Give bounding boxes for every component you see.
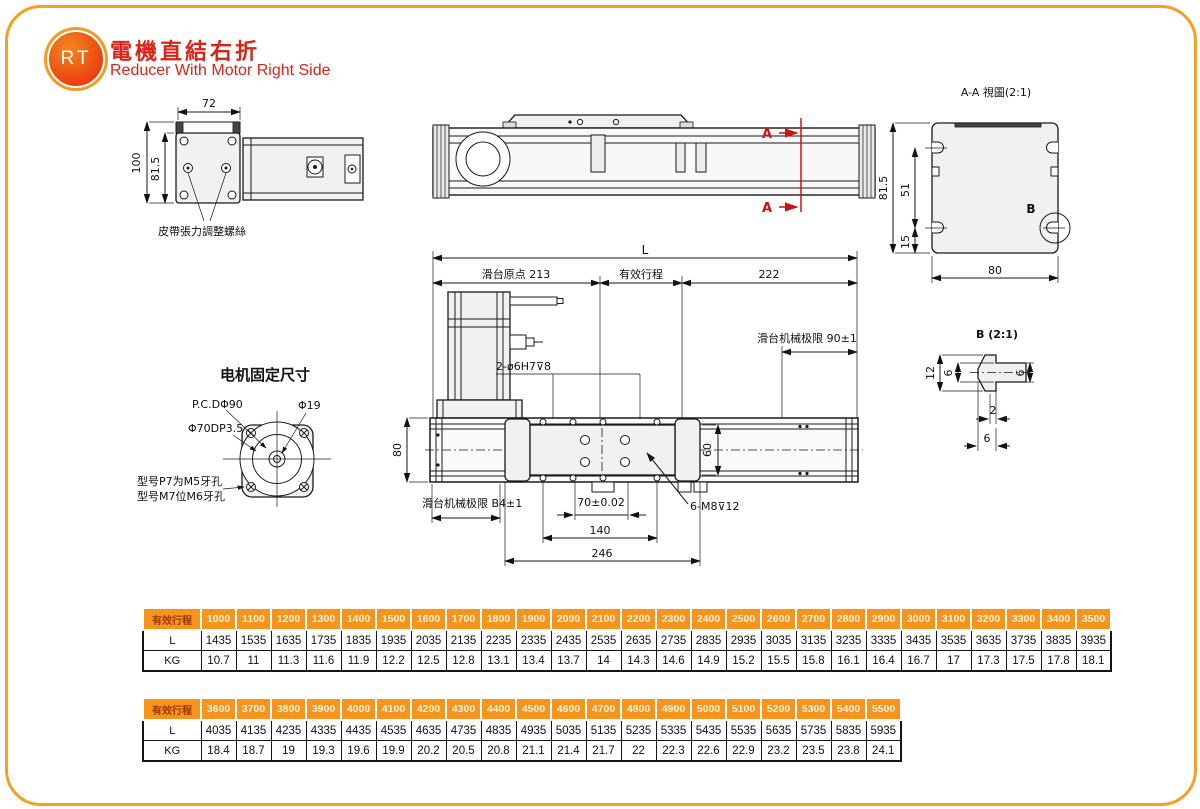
value-cell: 18.4 [201,741,236,762]
plan-dim-origin: 滑台原点 213 [482,267,551,281]
stroke-spec-table: 有效行程360037003800390040004100420043004400… [142,697,902,762]
value-cell: 13.1 [481,651,516,672]
value-cell: 2935 [726,630,761,651]
value-cell: 1535 [236,630,271,651]
stroke-header-cell: 1800 [481,608,516,630]
value-cell: 13.7 [551,651,586,672]
value-cell: 14.3 [621,651,656,672]
value-cell: 1735 [306,630,341,651]
stroke-header-cell: 2700 [796,608,831,630]
stroke-header-cell: 3400 [1041,608,1076,630]
value-cell: 15.2 [726,651,761,672]
value-cell: 12.8 [446,651,481,672]
value-cell: 5735 [796,720,831,741]
stroke-header-cell: 1700 [446,608,481,630]
table-row: KG10.71111.311.611.912.212.512.813.113.4… [143,651,1111,672]
plan-view-drawing: L 滑台原点 213 有效行程 222 [395,243,875,573]
plan-pin-holes: 2-ø6H7⊽8 [496,360,551,373]
plan-limit-right: 滑台机械极限 90±1 [757,331,857,345]
b-dim-12: 12 [924,366,937,380]
value-cell: 5435 [691,720,726,741]
value-cell: 1435 [201,630,236,651]
aa-dim-15: 15 [899,235,912,249]
value-cell: 22.9 [726,741,761,762]
value-cell: 21.4 [551,741,586,762]
value-cell: 13.4 [516,651,551,672]
value-cell: 14.9 [691,651,726,672]
value-cell: 4135 [236,720,271,741]
value-cell: 4235 [271,720,306,741]
value-cell: 19 [271,741,306,762]
stroke-header-cell: 3100 [936,608,971,630]
stroke-header-cell: 5000 [691,698,726,720]
stroke-header-cell: 1400 [341,608,376,630]
motor-note-2: 型号M7位M6牙孔 [137,489,225,503]
stroke-header-cell: 5400 [831,698,866,720]
value-cell: 19.6 [341,741,376,762]
value-cell: 23.8 [831,741,866,762]
value-cell: 16.4 [866,651,901,672]
stroke-header-cell: 4500 [516,698,551,720]
value-cell: 10.7 [201,651,236,672]
stroke-header-cell: 2600 [761,608,796,630]
value-cell: 20.8 [481,741,516,762]
value-cell: 5035 [551,720,586,741]
front-dim-height2: 81.5 [149,157,162,182]
stroke-header-cell: 1100 [236,608,271,630]
value-cell: 2635 [621,630,656,651]
value-cell: 18.7 [236,741,271,762]
value-cell: 22 [621,741,656,762]
row-label-cell: KG [143,741,201,762]
stroke-header-cell: 1900 [516,608,551,630]
stroke-header-cell: 3900 [306,698,341,720]
stroke-header-cell: 2100 [586,608,621,630]
value-cell: 3835 [1041,630,1076,651]
row-label-cell: KG [143,651,201,672]
value-cell: 15.5 [761,651,796,672]
value-cell: 2135 [446,630,481,651]
logo-text: RT [61,48,92,70]
value-cell: 4335 [306,720,341,741]
spec-table-1: 有效行程100011001200130014001500160017001800… [142,607,1112,672]
value-cell: 18.1 [1076,651,1111,672]
value-cell: 4735 [446,720,481,741]
value-cell: 2435 [551,630,586,651]
value-cell: 4935 [516,720,551,741]
section-aa-drawing: A-A 視圖(2:1) 81.5 51 15 8 [885,78,1197,293]
value-cell: 12.5 [411,651,446,672]
detail-b-drawing: B (2:1) 12 6 6 2 6 [928,316,1068,466]
stroke-header-cell: 4000 [341,698,376,720]
stroke-header-cell: 1500 [376,608,411,630]
value-cell: 3535 [936,630,971,651]
plan-dim-246: 246 [592,547,613,560]
value-cell: 19.3 [306,741,341,762]
stroke-header-cell: 3300 [1006,608,1041,630]
rt-logo: RT [44,27,108,91]
detail-b-title: B (2:1) [976,328,1018,341]
value-cell: 17.3 [971,651,1006,672]
table-row: L403541354235433544354535463547354835493… [143,720,901,741]
catalog-sheet: RT 電機直結右折 Reducer With Motor Right Side [0,0,1200,809]
aa-detail-b-label: B [1026,202,1035,216]
b-dim-6-bottom: 6 [984,432,991,445]
value-cell: 3435 [901,630,936,651]
motor-mount-drawing: 电机固定尺寸 P.C.DΦ90 Φ19 [130,358,400,518]
stroke-header-cell: 4900 [656,698,691,720]
stroke-header-cell: 4200 [411,698,446,720]
stroke-header-cell: 3800 [271,698,306,720]
value-cell: 3735 [1006,630,1041,651]
value-cell: 11.6 [306,651,341,672]
stroke-header-cell: 4300 [446,698,481,720]
stroke-header-cell: 4600 [551,698,586,720]
stroke-header-cell: 4100 [376,698,411,720]
stroke-header-cell: 3000 [901,608,936,630]
value-cell: 1935 [376,630,411,651]
section-label-a-top: A [762,127,772,142]
plan-dim-60: 60 [701,443,714,457]
aa-dim-height: 81.5 [877,176,890,201]
value-cell: 16.1 [831,651,866,672]
value-cell: 4435 [341,720,376,741]
spec-table-2: 有效行程360037003800390040004100420043004400… [142,697,902,762]
value-cell: 23.5 [796,741,831,762]
value-cell: 4635 [411,720,446,741]
b-dim-6-right: 6 [1014,370,1027,377]
stroke-header-cell: 2400 [691,608,726,630]
plan-motor [437,292,563,418]
value-cell: 5235 [621,720,656,741]
plan-screw-holes: 6-M8⊽12 [690,500,740,513]
value-cell: 15.8 [796,651,831,672]
motor-d70-label: Φ70DP3.5 [188,422,243,435]
value-cell: 24.1 [866,741,901,762]
value-cell: 20.5 [446,741,481,762]
stroke-spec-table: 有效行程100011001200130014001500160017001800… [142,607,1112,672]
value-cell: 11.3 [271,651,306,672]
stroke-header-cell: 3600 [201,698,236,720]
front-dim-width: 72 [202,97,216,110]
table-header-row: 有效行程100011001200130014001500160017001800… [143,608,1111,630]
value-cell: 21.7 [586,741,621,762]
b-dim-6-left: 6 [942,370,955,377]
value-cell: 4535 [376,720,411,741]
stroke-header-cell: 1000 [201,608,236,630]
stroke-header-cell: 3200 [971,608,1006,630]
stroke-header-cell: 2500 [726,608,761,630]
stroke-header-cell: 4400 [481,698,516,720]
value-cell: 22.3 [656,741,691,762]
value-cell: 11 [236,651,271,672]
stroke-header-cell: 3500 [1076,608,1111,630]
value-cell: 2035 [411,630,446,651]
value-cell: 17.5 [1006,651,1041,672]
side-view-drawing: A A [423,95,890,225]
stroke-header-cell: 1300 [306,608,341,630]
stroke-header-cell: 2900 [866,608,901,630]
value-cell: 2735 [656,630,691,651]
value-cell: 16.7 [901,651,936,672]
b-dim-2: 2 [990,404,997,417]
plan-dim-70: 70±0.02 [577,496,625,509]
value-cell: 4035 [201,720,236,741]
row-label-cell: L [143,630,201,651]
front-view-body [176,122,363,203]
value-cell: 5935 [866,720,901,741]
plan-limit-left: 滑台机械极限 B4±1 [422,496,522,510]
value-cell: 3235 [831,630,866,651]
value-cell: 20.2 [411,741,446,762]
value-cell: 5835 [831,720,866,741]
value-cell: 22.6 [691,741,726,762]
value-cell: 2835 [691,630,726,651]
value-cell: 2335 [516,630,551,651]
plan-dim-222: 222 [759,268,780,281]
motor-d19-label: Φ19 [298,399,321,412]
table-header-row: 有效行程360037003800390040004100420043004400… [143,698,901,720]
page-subtitle: Reducer With Motor Right Side [110,62,331,80]
aa-dim-width: 80 [988,264,1002,277]
plan-dim-L: L [642,243,649,257]
value-cell: 17 [936,651,971,672]
stroke-header-cell: 2300 [656,608,691,630]
stroke-header-cell: 5500 [866,698,901,720]
value-cell: 3035 [761,630,796,651]
stroke-header-cell: 4700 [586,698,621,720]
motor-note-1: 型号P7为M5牙孔 [137,474,222,488]
value-cell: 3635 [971,630,1006,651]
value-cell: 1835 [341,630,376,651]
value-cell: 5335 [656,720,691,741]
value-cell: 5135 [586,720,621,741]
stroke-header-cell: 3700 [236,698,271,720]
value-cell: 19.9 [376,741,411,762]
stroke-header-cell: 5300 [796,698,831,720]
front-dim-height: 100 [130,153,143,174]
table-row: KG18.418.71919.319.619.920.220.520.821.1… [143,741,901,762]
value-cell: 14 [586,651,621,672]
stroke-header-cell: 1600 [411,608,446,630]
value-cell: 11.9 [341,651,376,672]
stroke-header-cell: 2000 [551,608,586,630]
value-cell: 17.8 [1041,651,1076,672]
value-cell: 12.2 [376,651,411,672]
plan-dim-140: 140 [590,524,611,537]
value-cell: 1635 [271,630,306,651]
value-cell: 2235 [481,630,516,651]
plan-dim-stroke: 有效行程 [619,267,663,281]
table-row: L143515351635173518351935203521352235233… [143,630,1111,651]
stroke-header-cell: 1200 [271,608,306,630]
side-view-body [433,115,875,198]
motor-mount-title: 电机固定尺寸 [220,366,310,384]
stroke-header-cell: 5200 [761,698,796,720]
section-aa-title: A-A 視圖(2:1) [961,85,1031,99]
stroke-header-cell: 4800 [621,698,656,720]
stroke-header-cell: 2200 [621,608,656,630]
value-cell: 23.2 [761,741,796,762]
value-cell: 5635 [761,720,796,741]
motor-pcd-label: P.C.DΦ90 [192,398,243,411]
value-cell: 14.6 [656,651,691,672]
belt-tension-label: 皮帶張力調整螺絲 [158,224,246,238]
value-cell: 4835 [481,720,516,741]
value-cell: 5535 [726,720,761,741]
value-cell: 3935 [1076,630,1111,651]
stroke-header-label: 有效行程 [143,698,201,720]
section-label-a-bottom: A [762,201,772,216]
row-label-cell: L [143,720,201,741]
stroke-header-cell: 2800 [831,608,866,630]
front-view-drawing: 72 100 81.5 皮帶張力調整螺絲 [118,93,418,243]
stroke-header-label: 有效行程 [143,608,201,630]
stroke-header-cell: 5100 [726,698,761,720]
value-cell: 2535 [586,630,621,651]
value-cell: 3335 [866,630,901,651]
rt-logo-inner: RT [47,30,105,88]
section-aa-profile [925,123,1070,253]
value-cell: 21.1 [516,741,551,762]
value-cell: 3135 [796,630,831,651]
aa-dim-51: 51 [899,183,912,197]
